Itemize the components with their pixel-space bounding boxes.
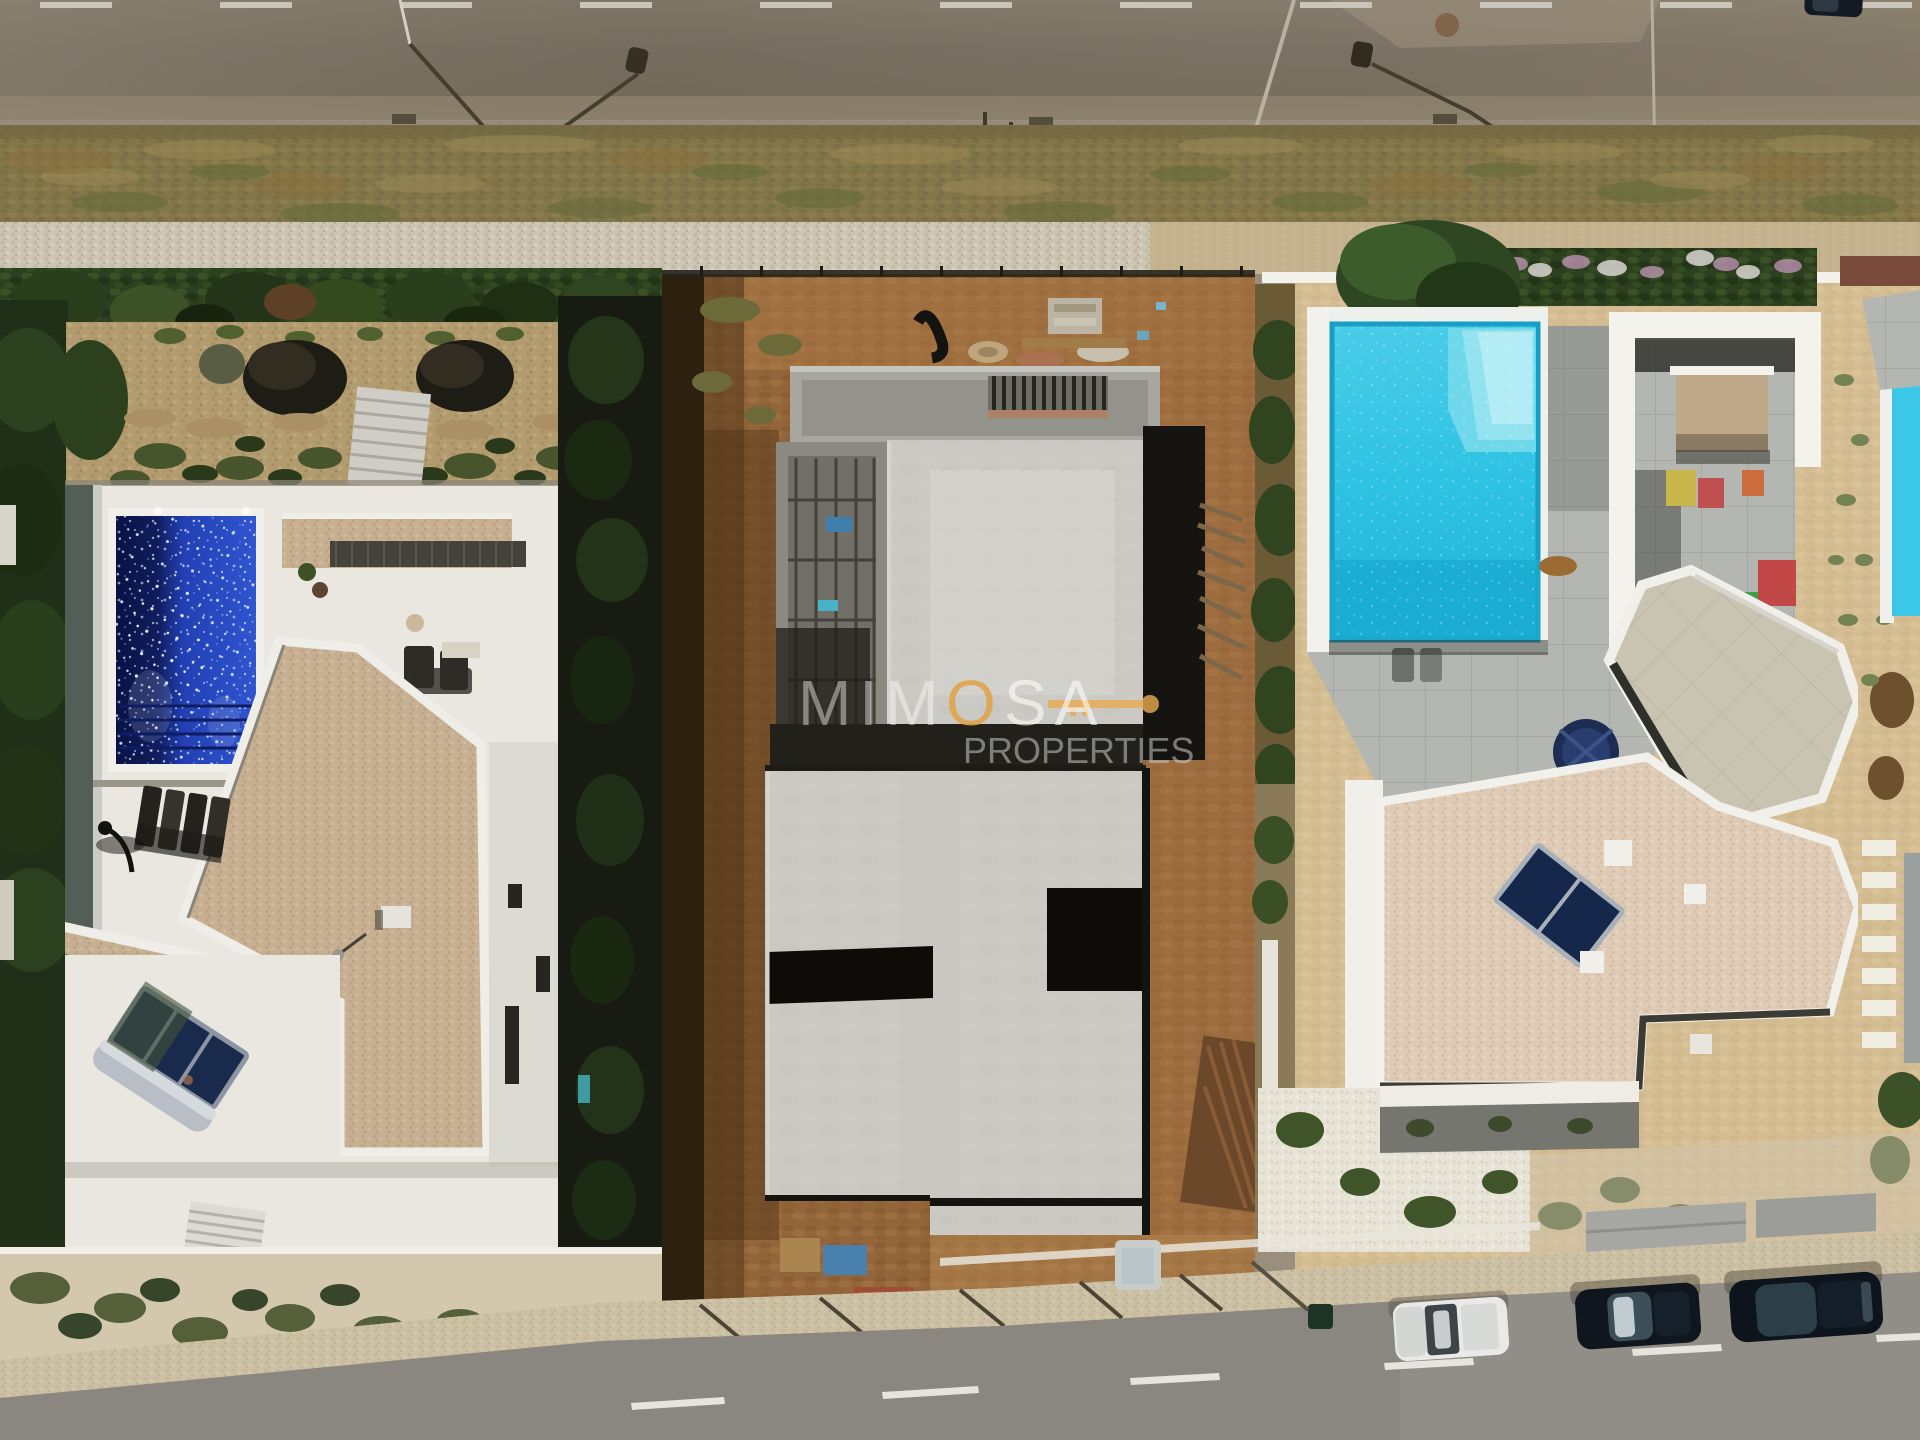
svg-text:MIM: MIM [798, 667, 946, 739]
svg-text:PROPERTIES: PROPERTIES [963, 730, 1194, 771]
svg-text:O: O [946, 667, 996, 739]
svg-text:SA: SA [1004, 667, 1105, 739]
